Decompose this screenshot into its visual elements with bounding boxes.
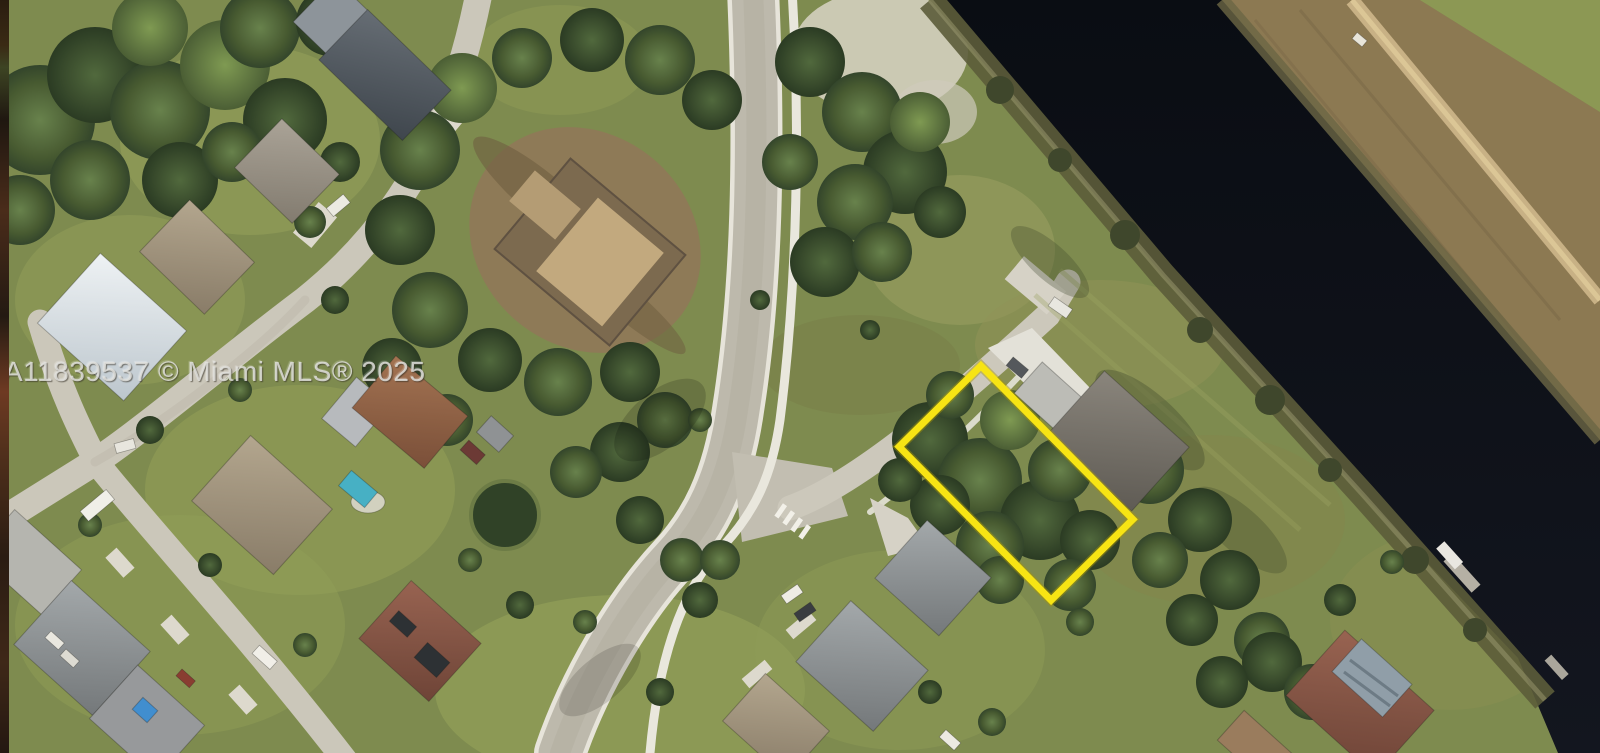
round-pond	[471, 481, 539, 549]
mls-watermark: A11839537 © Miami MLS® 2025	[4, 356, 344, 388]
left-edge-artifact	[0, 0, 9, 753]
aerial-photo: A11839537 © Miami MLS® 2025	[0, 0, 1600, 753]
